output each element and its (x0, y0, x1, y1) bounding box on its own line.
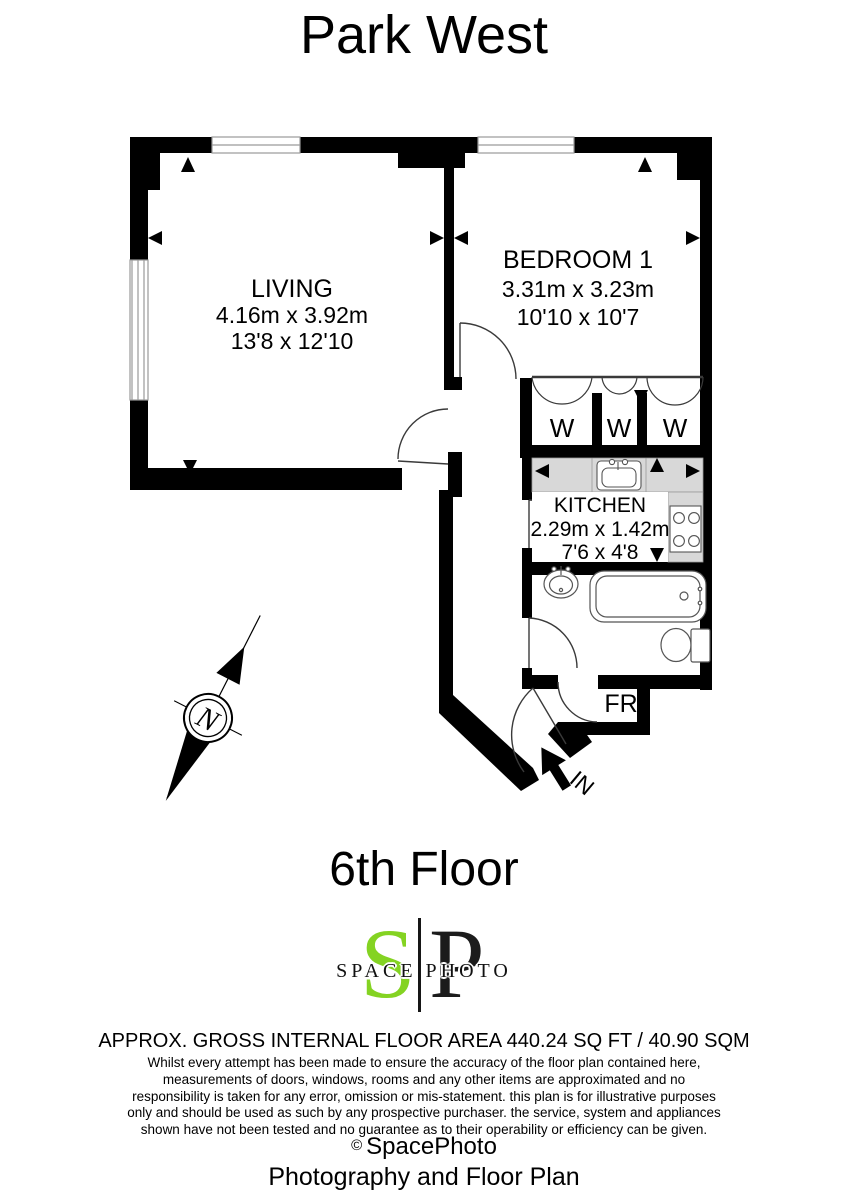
living-dims-metric: 4.16m x 3.92m (216, 302, 368, 328)
disclaimer-line: Whilst every attempt has been made to en… (0, 1055, 848, 1072)
bedroom-dims-metric: 3.31m x 3.23m (502, 276, 654, 302)
wardrobe-label-3: W (663, 413, 688, 443)
bath-icon (590, 571, 706, 622)
disclaimer: Whilst every attempt has been made to en… (0, 1055, 848, 1139)
kitchen-dims-imperial: 7'6 x 4'8 (562, 541, 639, 564)
kitchen-dims-metric: 2.29m x 1.42m (531, 518, 670, 541)
logo-wordmark: SPACE PHOTO (336, 960, 512, 983)
tagline: Photography and Floor Plan (0, 1163, 848, 1192)
bedroom-dims-imperial: 10'10 x 10'7 (517, 304, 640, 330)
kitchen-sink-icon (597, 459, 641, 490)
wardrobe-label-1: W (550, 413, 575, 443)
disclaimer-line: measurements of doors, windows, rooms an… (0, 1072, 848, 1089)
wardrobe-label-2: W (607, 413, 632, 443)
space-photo-logo: S P SPACE PHOTO (0, 912, 848, 1016)
wardrobe-bifold-doors (532, 377, 703, 405)
bathroom-door (529, 618, 577, 668)
bathroom-fixtures (544, 566, 710, 662)
fr-label: FR (604, 690, 637, 718)
bedroom-top-window (478, 137, 574, 153)
hob-icon (670, 506, 701, 552)
floor-plan: N LIVING 4.16m x 3.92m 13'8 x 12'10 BEDR… (0, 0, 848, 830)
toilet-icon (661, 629, 710, 663)
compass-icon: N (132, 598, 294, 818)
living-dims-imperial: 13'8 x 12'10 (231, 328, 354, 354)
entrance-label: IN (565, 766, 599, 801)
living-left-window (130, 260, 148, 400)
kitchen-label: KITCHEN (554, 494, 646, 517)
living-door (398, 409, 448, 464)
living-room-label: LIVING (251, 275, 333, 303)
disclaimer-line: responsibility is taken for any error, o… (0, 1089, 848, 1106)
disclaimer-line: only and should be used as such by any p… (0, 1105, 848, 1122)
fr-door (558, 682, 597, 722)
floor-label: 6th Floor (0, 842, 848, 897)
bedroom-door (460, 323, 516, 379)
living-top-window (212, 137, 300, 153)
copyright-name: SpacePhoto (366, 1133, 497, 1160)
bedroom-label: BEDROOM 1 (503, 246, 653, 274)
floor-area-line: APPROX. GROSS INTERNAL FLOOR AREA 440.24… (0, 1030, 848, 1053)
copyright-line: ©SpacePhoto (0, 1133, 848, 1161)
copyright-symbol: © (351, 1137, 362, 1154)
